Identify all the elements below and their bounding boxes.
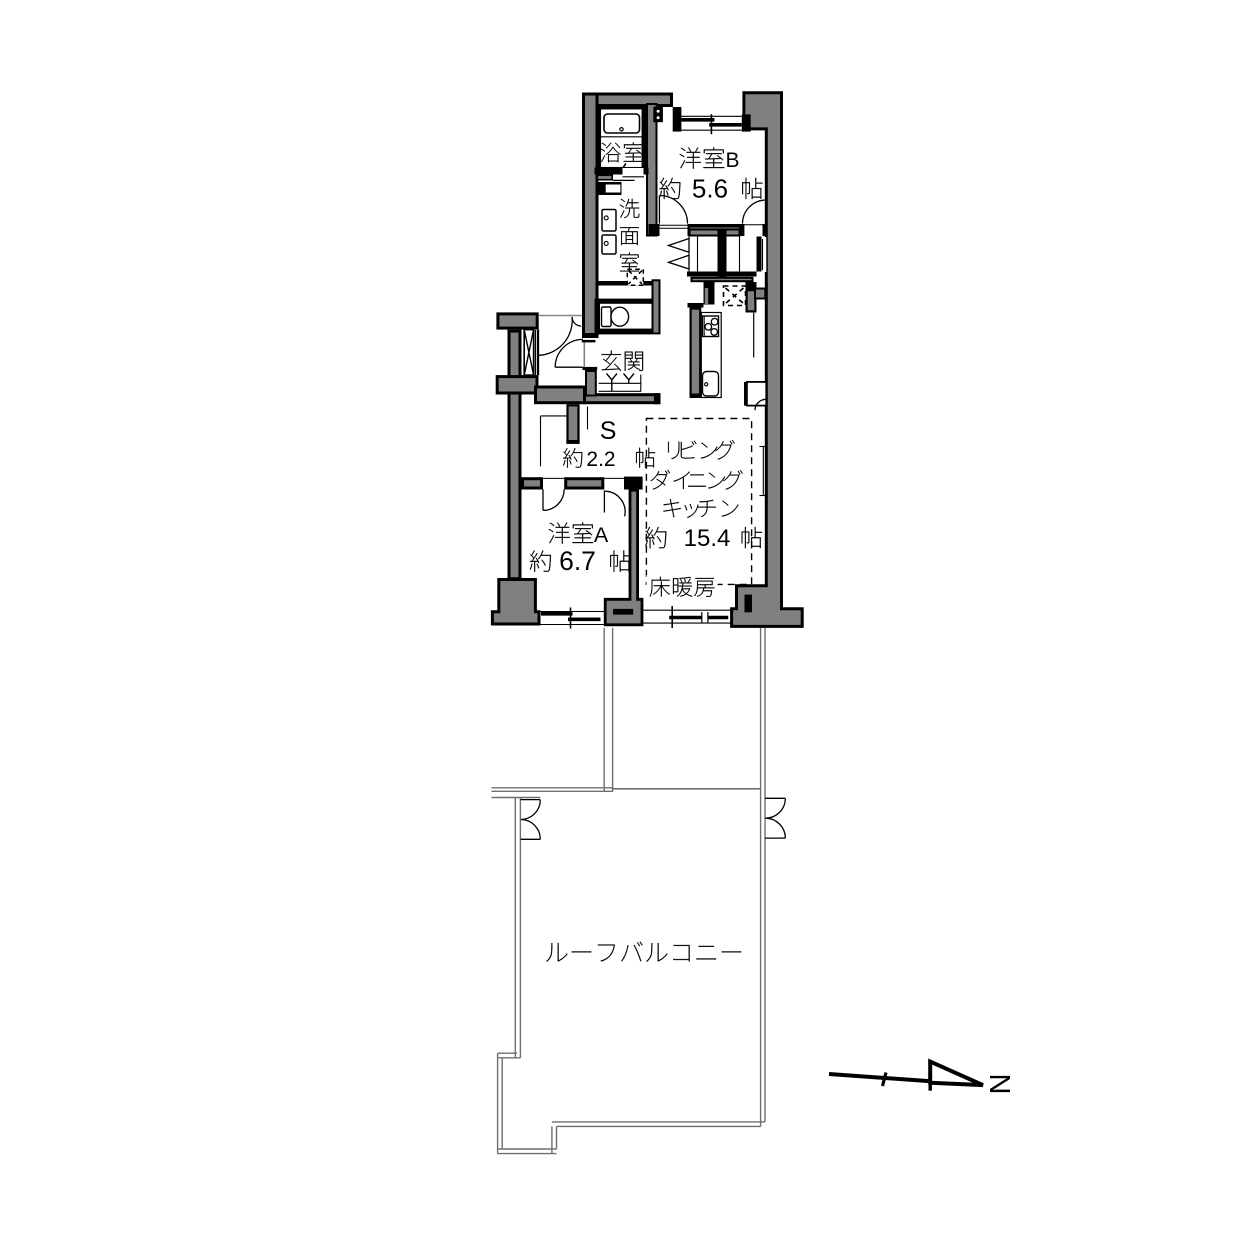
svg-text:B: B (725, 149, 739, 172)
svg-text:N: N (983, 1074, 1015, 1095)
svg-text:5.6: 5.6 (692, 173, 728, 203)
svg-text:S: S (600, 417, 617, 445)
svg-text:15.4: 15.4 (684, 525, 731, 552)
svg-text:A: A (594, 523, 609, 547)
svg-text:2.2: 2.2 (586, 448, 615, 471)
svg-text:6.7: 6.7 (559, 546, 596, 576)
